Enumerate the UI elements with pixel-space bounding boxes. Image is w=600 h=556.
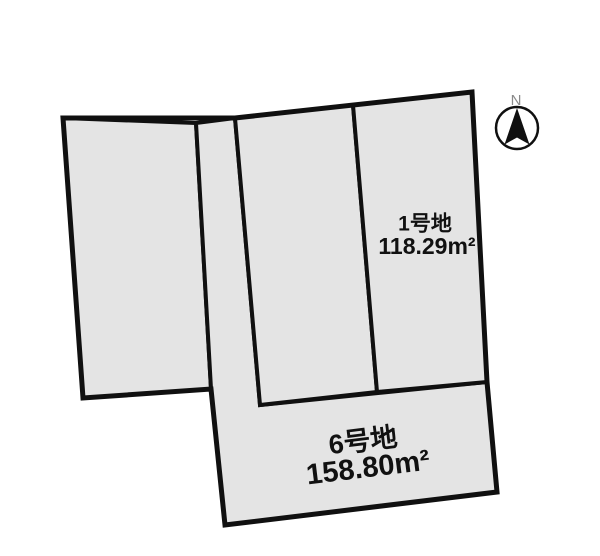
lot1-area-label: 118.29m² xyxy=(378,233,476,259)
compass: N xyxy=(496,92,538,149)
parcel-layer xyxy=(63,92,497,525)
lot-plan-map: 1号地 118.29m² 6号地 158.80m² N xyxy=(0,0,600,556)
lot1-name-label: 1号地 xyxy=(398,212,452,236)
parcel-left xyxy=(63,118,211,398)
lot-plan-page: 1号地 118.29m² 6号地 158.80m² N xyxy=(0,0,600,556)
